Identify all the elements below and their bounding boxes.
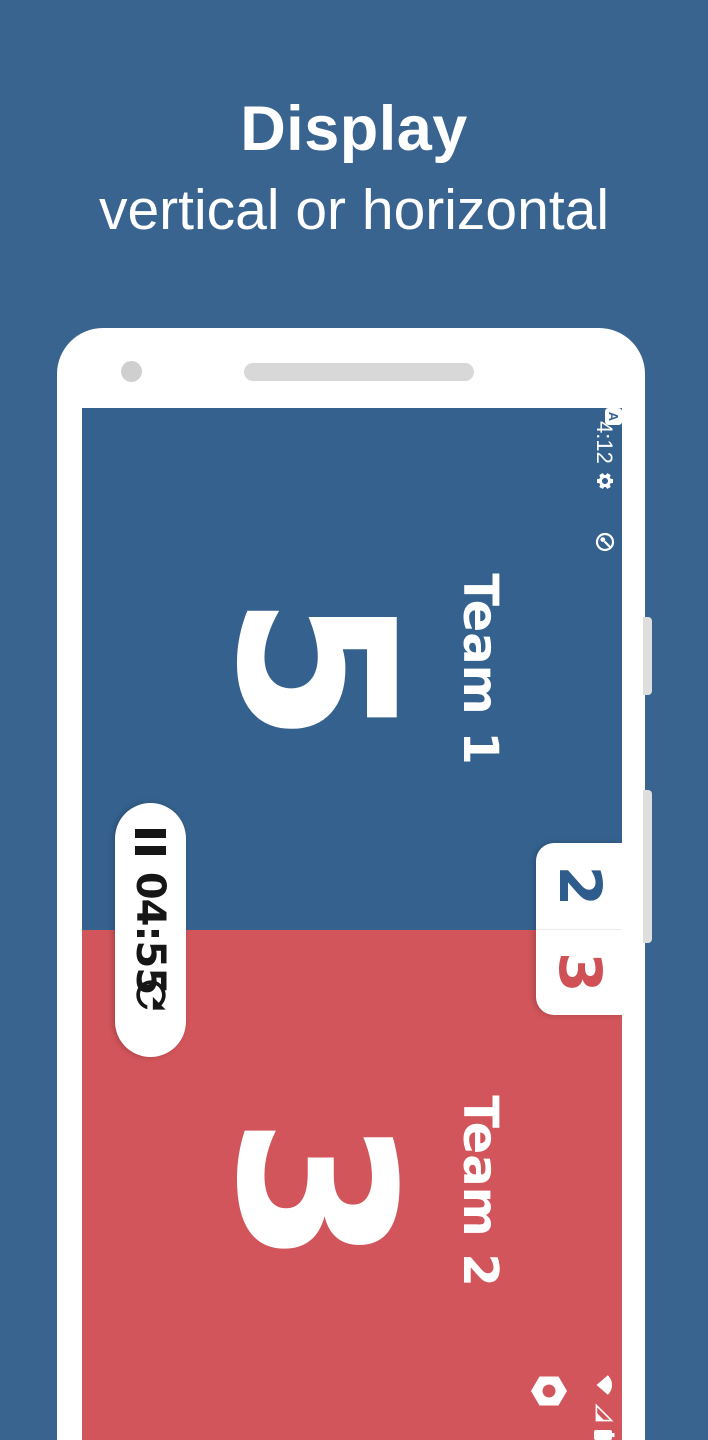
page-subtitle: vertical or horizontal bbox=[0, 179, 708, 241]
team1-score: 5 bbox=[207, 408, 422, 930]
pause-button[interactable] bbox=[135, 829, 166, 855]
phone-mockup: Team 1 5 Team 2 3 4:12 A bbox=[57, 328, 645, 1440]
volume-button bbox=[643, 790, 652, 943]
cell-signal-icon bbox=[595, 1402, 615, 1422]
page-title: Display bbox=[0, 96, 708, 162]
reset-button[interactable] bbox=[129, 973, 173, 1017]
front-camera bbox=[121, 361, 142, 382]
team2-sets[interactable]: 3 bbox=[536, 930, 622, 1016]
battery-icon bbox=[593, 1427, 616, 1440]
app-settings-button[interactable] bbox=[530, 1374, 568, 1408]
timer-pill: 04:55 bbox=[115, 803, 186, 1057]
team2-score: 3 bbox=[207, 930, 422, 1440]
team1-name: Team 1 bbox=[456, 408, 504, 930]
sets-panel: 2 3 bbox=[536, 843, 622, 1015]
data-saver-icon bbox=[595, 532, 615, 552]
settings-gear-icon bbox=[595, 471, 615, 491]
promo-screenshot: Display vertical or horizontal Team 1 5 … bbox=[0, 0, 708, 1440]
scoreboard-app: Team 1 5 Team 2 3 4:12 A bbox=[82, 408, 622, 1440]
wifi-icon bbox=[595, 1374, 615, 1396]
phone-screen: Team 1 5 Team 2 3 4:12 A bbox=[82, 408, 622, 1440]
status-time: 4:12 bbox=[586, 421, 622, 464]
team2-name: Team 2 bbox=[456, 930, 504, 1440]
power-button bbox=[643, 617, 652, 695]
earpiece-speaker bbox=[244, 363, 474, 381]
team1-sets[interactable]: 2 bbox=[536, 843, 622, 930]
